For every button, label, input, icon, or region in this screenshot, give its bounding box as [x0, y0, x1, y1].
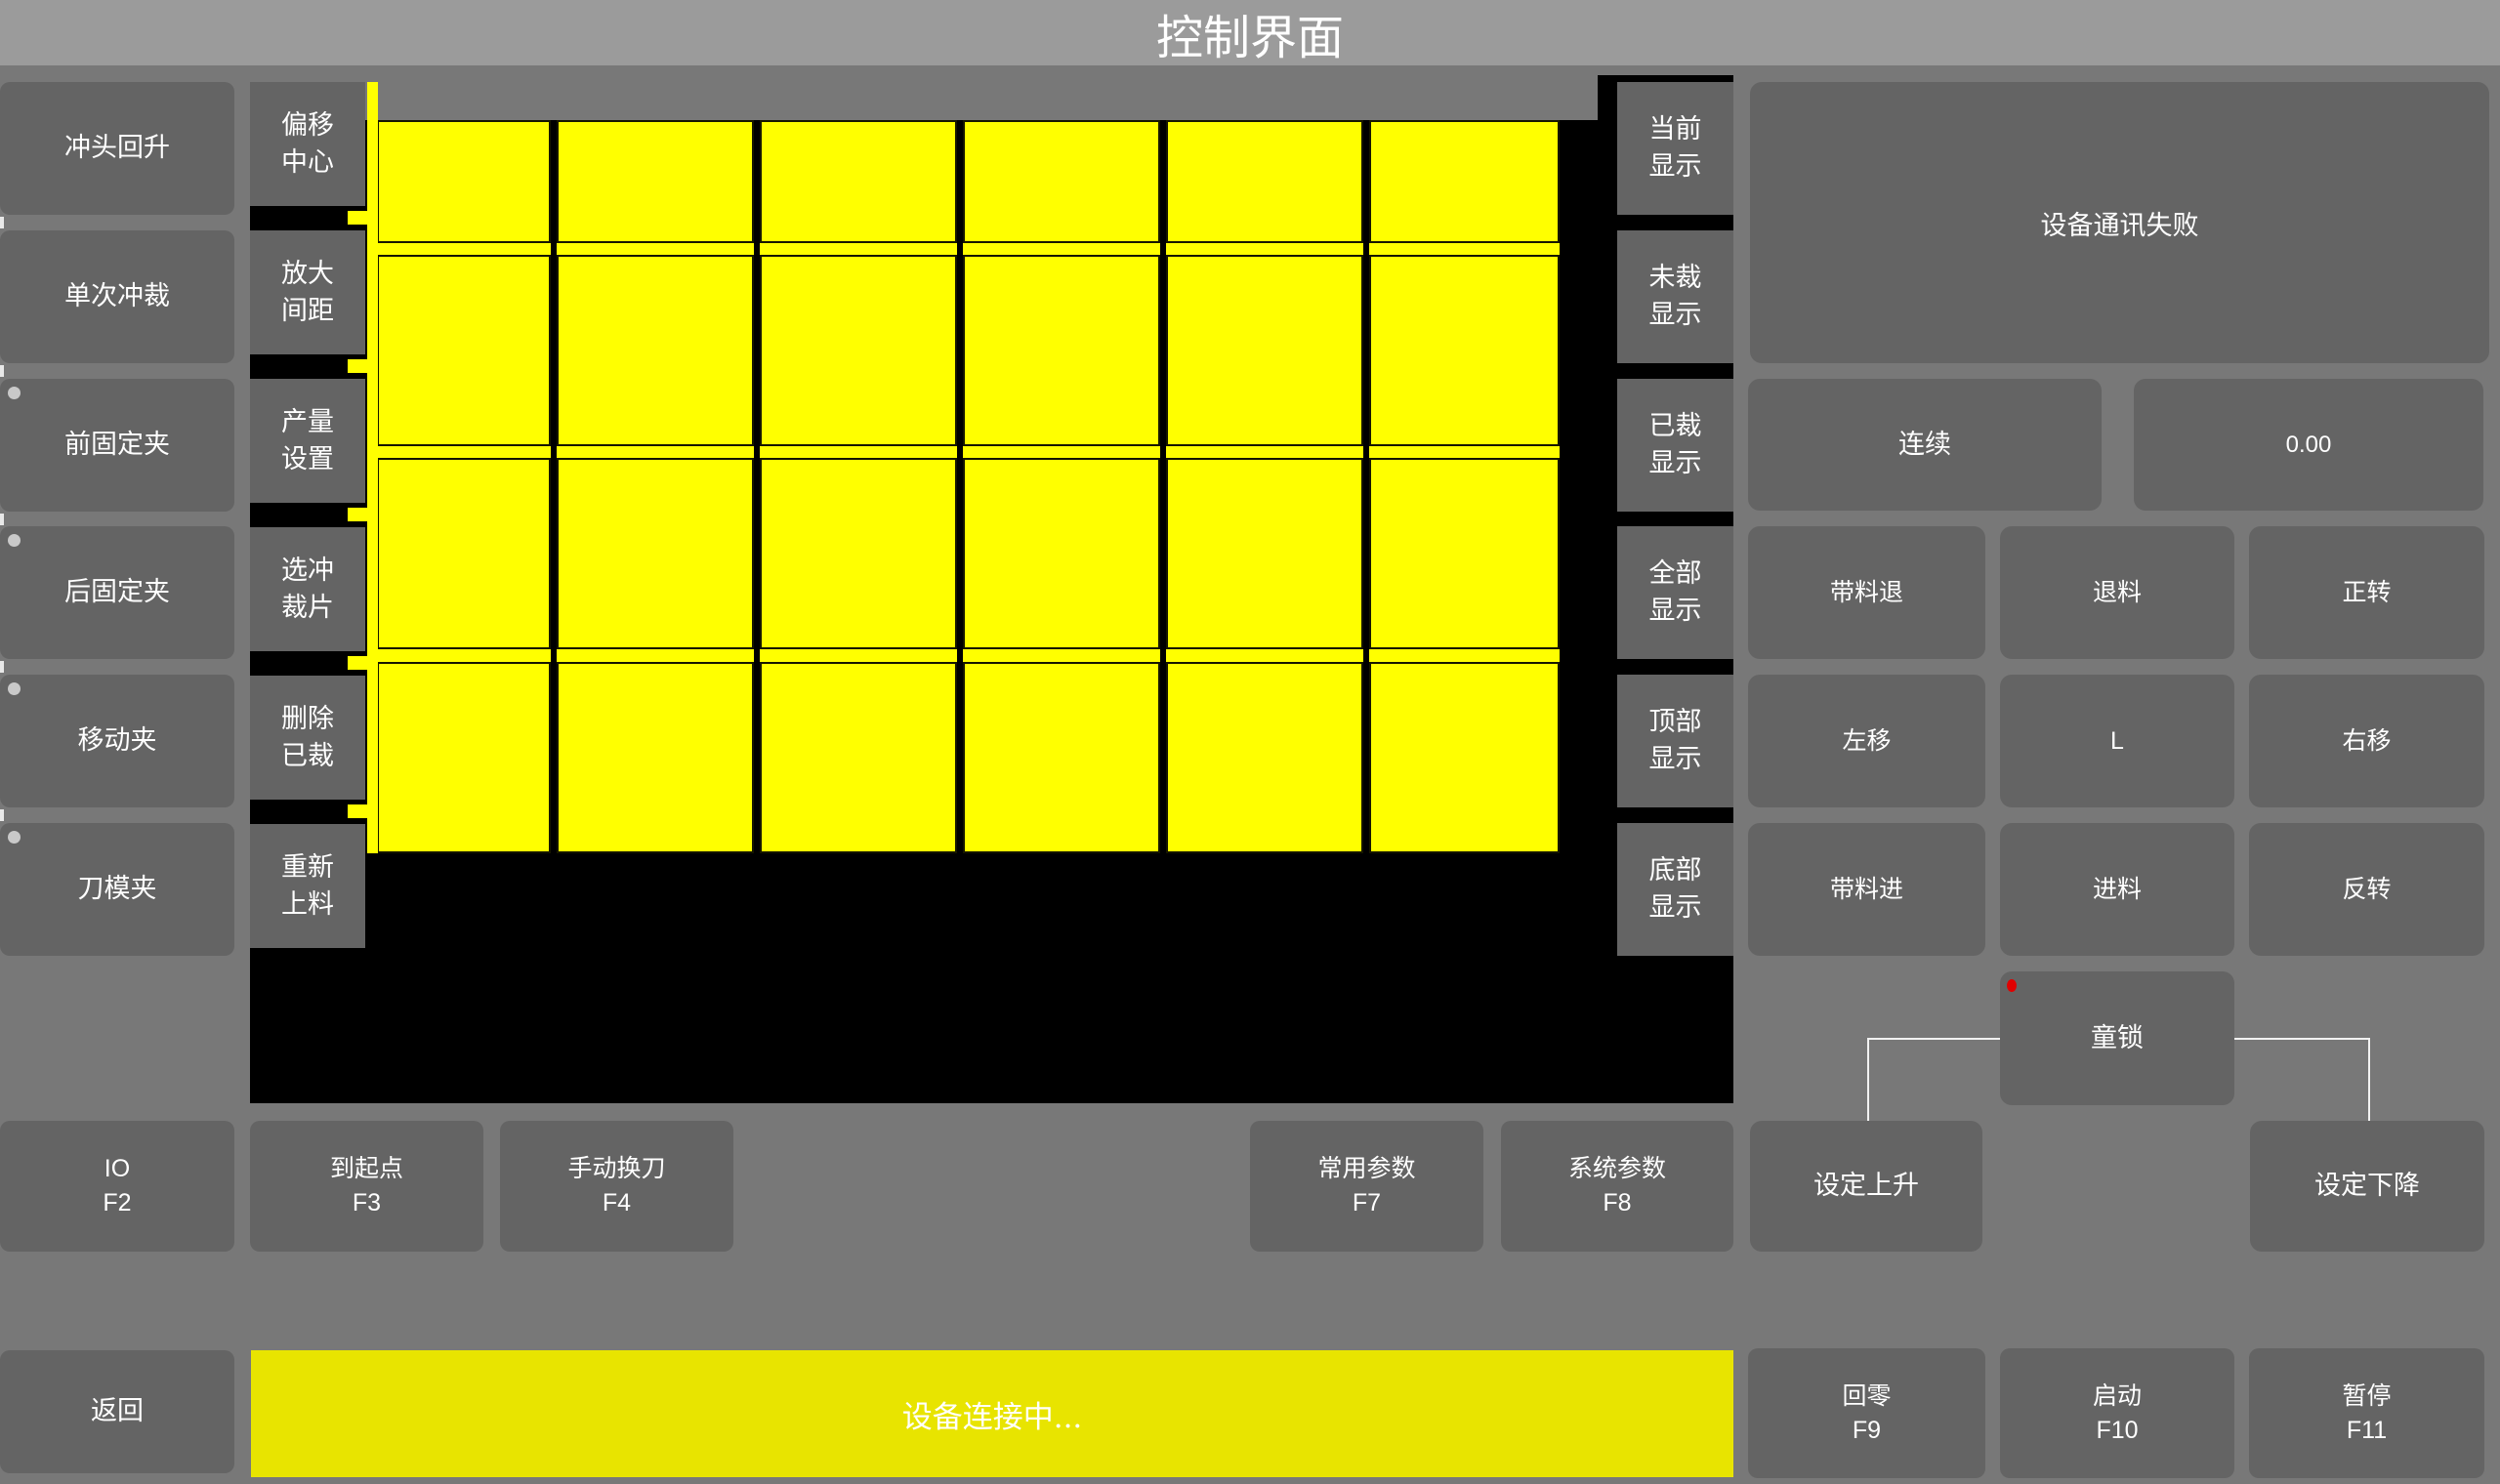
- show-current-button[interactable]: 当前 显示: [1617, 82, 1733, 215]
- material-strip-notch: [348, 804, 369, 818]
- workpiece-cell[interactable]: [963, 458, 1160, 649]
- feed-button[interactable]: 进料: [2000, 823, 2234, 956]
- system-params-f8-button[interactable]: 系统参数 F8: [1501, 1121, 1733, 1252]
- offset-center-button[interactable]: 偏移 中心: [250, 82, 365, 206]
- l-button[interactable]: L: [2000, 675, 2234, 807]
- front-clamp-button[interactable]: 前固定夹: [0, 379, 234, 512]
- rear-clamp-button[interactable]: 后固定夹: [0, 526, 234, 659]
- workpiece-cell[interactable]: [377, 120, 551, 243]
- pause-f11-button[interactable]: 暂停 F11: [2249, 1348, 2484, 1478]
- connector-line-right-h: [2234, 1038, 2368, 1040]
- mode-continuous-button[interactable]: 连续: [1748, 379, 2102, 511]
- workpiece-cell[interactable]: [963, 255, 1160, 446]
- tape-back-button[interactable]: 带料退: [1748, 526, 1985, 659]
- back-button[interactable]: 返回: [0, 1350, 234, 1473]
- show-top-button[interactable]: 顶部 显示: [1617, 675, 1733, 807]
- edge-tick: [0, 809, 4, 821]
- workpiece-cell[interactable]: [1369, 120, 1560, 243]
- child-lock-red-indicator: [2007, 979, 2017, 992]
- connector-line-left-v: [1867, 1038, 1869, 1121]
- status-message: 设备连接中...: [902, 1392, 1083, 1436]
- clamp-state-indicator: [8, 831, 21, 844]
- workpiece-cell[interactable]: [1166, 662, 1363, 853]
- enlarge-spacing-button[interactable]: 放大 间距: [250, 230, 365, 354]
- edge-tick: [0, 661, 4, 673]
- workpiece-cell[interactable]: [377, 662, 551, 853]
- show-uncut-button[interactable]: 未裁 显示: [1617, 230, 1733, 363]
- show-cut-button[interactable]: 已裁 显示: [1617, 379, 1733, 512]
- edge-tick: [0, 514, 4, 525]
- start-f10-button[interactable]: 启动 F10: [2000, 1348, 2234, 1478]
- page-title: 控制界面: [1156, 0, 1344, 67]
- single-punch-button[interactable]: 单次冲裁: [0, 230, 234, 363]
- reload-material-button[interactable]: 重新 上料: [250, 824, 365, 948]
- tape-forward-button[interactable]: 带料进: [1748, 823, 1985, 956]
- connector-line-left-h: [1867, 1038, 2000, 1040]
- show-bottom-button[interactable]: 底部 显示: [1617, 823, 1733, 956]
- delete-cut-button[interactable]: 删除 已裁: [250, 676, 365, 800]
- workpiece-cell[interactable]: [760, 458, 957, 649]
- punch-return-button[interactable]: 冲头回升: [0, 82, 234, 215]
- workpiece-cell[interactable]: [760, 662, 957, 853]
- workpiece-cell[interactable]: [963, 662, 1160, 853]
- title-bar: 控制界面: [0, 0, 2500, 65]
- material-strip-notch: [348, 508, 369, 521]
- material-edge-strip: [367, 82, 378, 853]
- connector-line-right-v: [2368, 1038, 2370, 1121]
- workpiece-cell[interactable]: [1369, 662, 1560, 853]
- workpiece-cell[interactable]: [1369, 458, 1560, 649]
- material-strip-notch: [348, 211, 369, 225]
- workpiece-cell[interactable]: [1166, 120, 1363, 243]
- to-origin-f3-button[interactable]: 到起点 F3: [250, 1121, 483, 1252]
- comm-status-box: 设备通讯失败: [1750, 82, 2489, 363]
- unload-button[interactable]: 退料: [2000, 526, 2234, 659]
- workpiece-cell[interactable]: [557, 662, 754, 853]
- workpiece-cell[interactable]: [1166, 458, 1363, 649]
- value-display: 0.00: [2134, 379, 2483, 511]
- edge-tick: [0, 365, 4, 377]
- yield-setting-button[interactable]: 产量 设置: [250, 379, 365, 503]
- io-f2-button[interactable]: IO F2: [0, 1121, 234, 1252]
- control-interface: 控制界面 设备通讯失败 连续 0.00 童锁 设定上升 设定下降 返回 设备连接…: [0, 0, 2500, 1484]
- workpiece-cell[interactable]: [963, 120, 1160, 243]
- workpiece-cell[interactable]: [760, 255, 957, 446]
- move-right-button[interactable]: 右移: [2249, 675, 2484, 807]
- workpiece-cell[interactable]: [557, 255, 754, 446]
- forward-rotate-button[interactable]: 正转: [2249, 526, 2484, 659]
- workpiece-cell[interactable]: [557, 120, 754, 243]
- workpiece-cell[interactable]: [377, 458, 551, 649]
- manual-tool-change-f4-button[interactable]: 手动换刀 F4: [500, 1121, 733, 1252]
- set-rise-button[interactable]: 设定上升: [1750, 1121, 1982, 1252]
- select-piece-button[interactable]: 选冲 裁片: [250, 527, 365, 651]
- status-message-bar: 设备连接中...: [251, 1350, 1733, 1477]
- home-f9-button[interactable]: 回零 F9: [1748, 1348, 1985, 1478]
- die-clamp-button[interactable]: 刀模夹: [0, 823, 234, 956]
- clamp-state-indicator: [8, 534, 21, 547]
- workpiece-cell[interactable]: [557, 458, 754, 649]
- common-params-f7-button[interactable]: 常用参数 F7: [1250, 1121, 1483, 1252]
- material-strip-notch: [348, 656, 369, 670]
- child-lock-button[interactable]: 童锁: [2000, 971, 2234, 1105]
- set-fall-button[interactable]: 设定下降: [2250, 1121, 2484, 1252]
- move-left-button[interactable]: 左移: [1748, 675, 1985, 807]
- reverse-rotate-button[interactable]: 反转: [2249, 823, 2484, 956]
- canvas-top-band: [250, 75, 1598, 120]
- workpiece-cell[interactable]: [760, 120, 957, 243]
- clamp-state-indicator: [8, 682, 21, 695]
- material-strip-notch: [348, 359, 369, 373]
- workpiece-cell[interactable]: [377, 255, 551, 446]
- workpiece-cell[interactable]: [1369, 255, 1560, 446]
- workpiece-cell[interactable]: [1166, 255, 1363, 446]
- show-all-button[interactable]: 全部 显示: [1617, 526, 1733, 659]
- child-lock-label: 童锁: [2091, 1020, 2144, 1057]
- moving-clamp-button[interactable]: 移动夹: [0, 675, 234, 807]
- edge-tick: [0, 217, 4, 228]
- clamp-state-indicator: [8, 387, 21, 399]
- workpiece-grid: [377, 120, 1560, 853]
